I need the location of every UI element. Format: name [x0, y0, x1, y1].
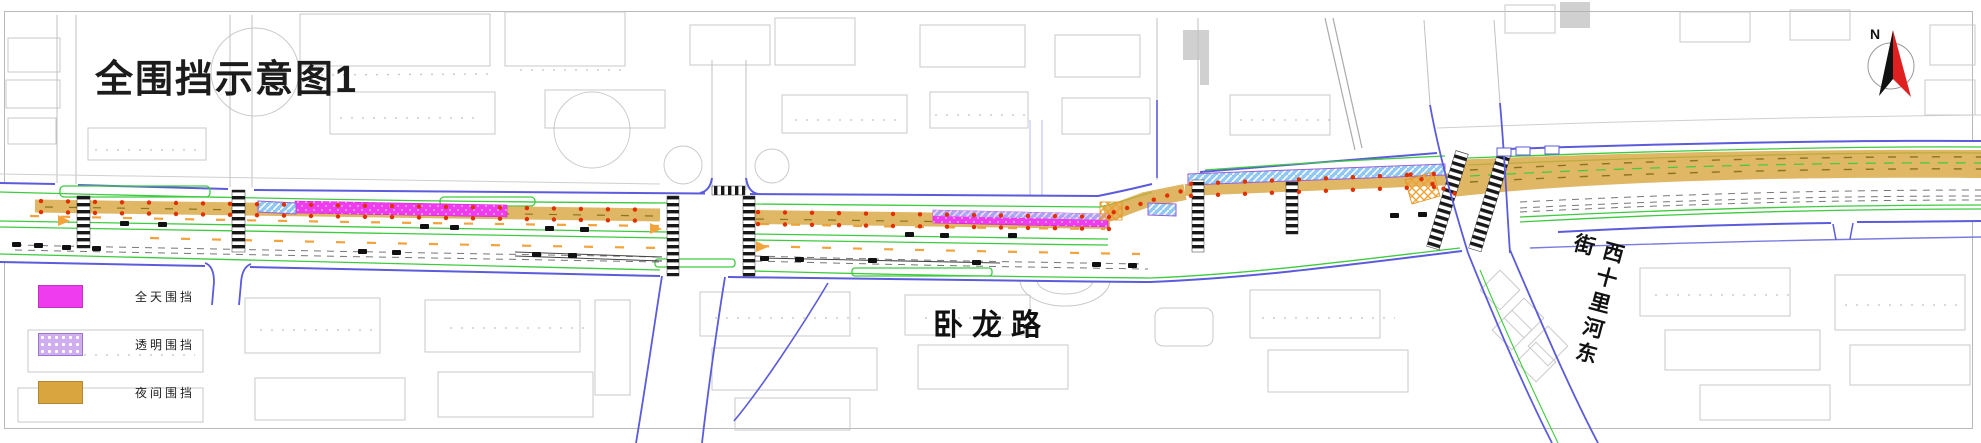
legend-item-transparent: 透明围挡 [38, 332, 298, 356]
all-day-label: 全天围挡 [135, 288, 195, 305]
main-road-label: 卧龙路 [933, 300, 1050, 344]
legend: 全天围挡 透明围挡 夜间围挡 [38, 284, 298, 428]
transparent-swatch [38, 333, 83, 356]
night-swatch [38, 381, 83, 404]
night-label: 夜间围挡 [135, 384, 195, 401]
background-dark-buildings [1183, 2, 1590, 85]
all-day-swatch [38, 285, 83, 308]
page-title: 全围挡示意图1 [95, 48, 358, 103]
side-streets-north [57, 15, 1200, 195]
site-plan-page: 全围挡示意图1 卧龙路 西十里河东街 全天围挡 透明围挡 夜间围挡 N [0, 0, 1981, 443]
rail-diagonal [1325, 18, 1362, 150]
legend-item-all-day: 全天围挡 [38, 284, 298, 308]
legend-item-night: 夜间围挡 [38, 380, 298, 404]
transparent-label: 透明围挡 [135, 336, 195, 353]
bus-bays [1497, 146, 1559, 156]
compass-n-label: N [1870, 26, 1880, 42]
compass-label-wrap: N [1862, 24, 1934, 110]
